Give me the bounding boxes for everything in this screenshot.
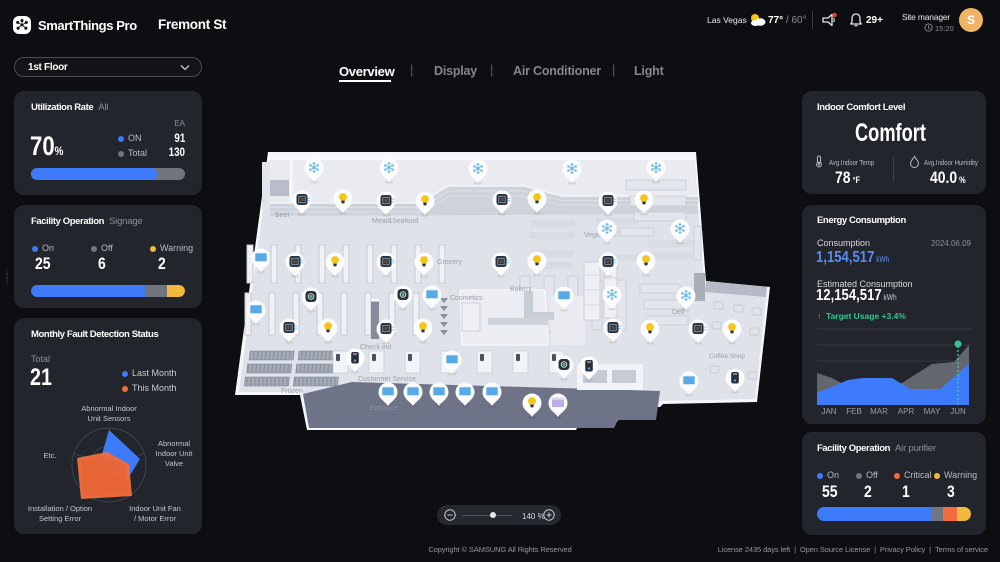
svg-text:MAR: MAR [870, 407, 888, 415]
svg-text:Abnormal: Abnormal [158, 439, 190, 448]
svg-text:Indoor Unit Fan: Indoor Unit Fan [129, 504, 181, 513]
svg-text:Check out: Check out [360, 344, 392, 351]
svg-text:Unit Sensors: Unit Sensors [88, 414, 131, 423]
svg-text:Custormer Service: Custormer Service [358, 376, 416, 383]
svg-text:Bakery: Bakery [510, 286, 532, 293]
svg-text:Abnormal Indoor: Abnormal Indoor [81, 404, 137, 413]
svg-text:Beer: Beer [275, 212, 290, 219]
svg-text:Meat&Seafood: Meat&Seafood [372, 218, 418, 225]
svg-text:APR: APR [898, 407, 915, 415]
svg-text:JAN: JAN [821, 407, 836, 415]
svg-text:Setting Error: Setting Error [39, 514, 82, 523]
svg-text:Etc.: Etc. [44, 451, 57, 460]
svg-text:Indoor Unit: Indoor Unit [156, 449, 194, 458]
svg-text:FEB: FEB [846, 407, 862, 415]
svg-text:Grocery: Grocery [437, 259, 462, 266]
svg-text:Coffee Shop: Coffee Shop [709, 353, 745, 360]
svg-text:MAY: MAY [924, 407, 941, 415]
svg-text:Cosmetics: Cosmetics [450, 295, 483, 302]
svg-text:Installation / Option: Installation / Option [28, 504, 92, 513]
svg-text:Valve: Valve [165, 459, 183, 468]
svg-text:/ Motor Error: / Motor Error [134, 514, 177, 523]
svg-text:JUN: JUN [950, 407, 966, 415]
svg-text:Frozen: Frozen [281, 388, 303, 395]
